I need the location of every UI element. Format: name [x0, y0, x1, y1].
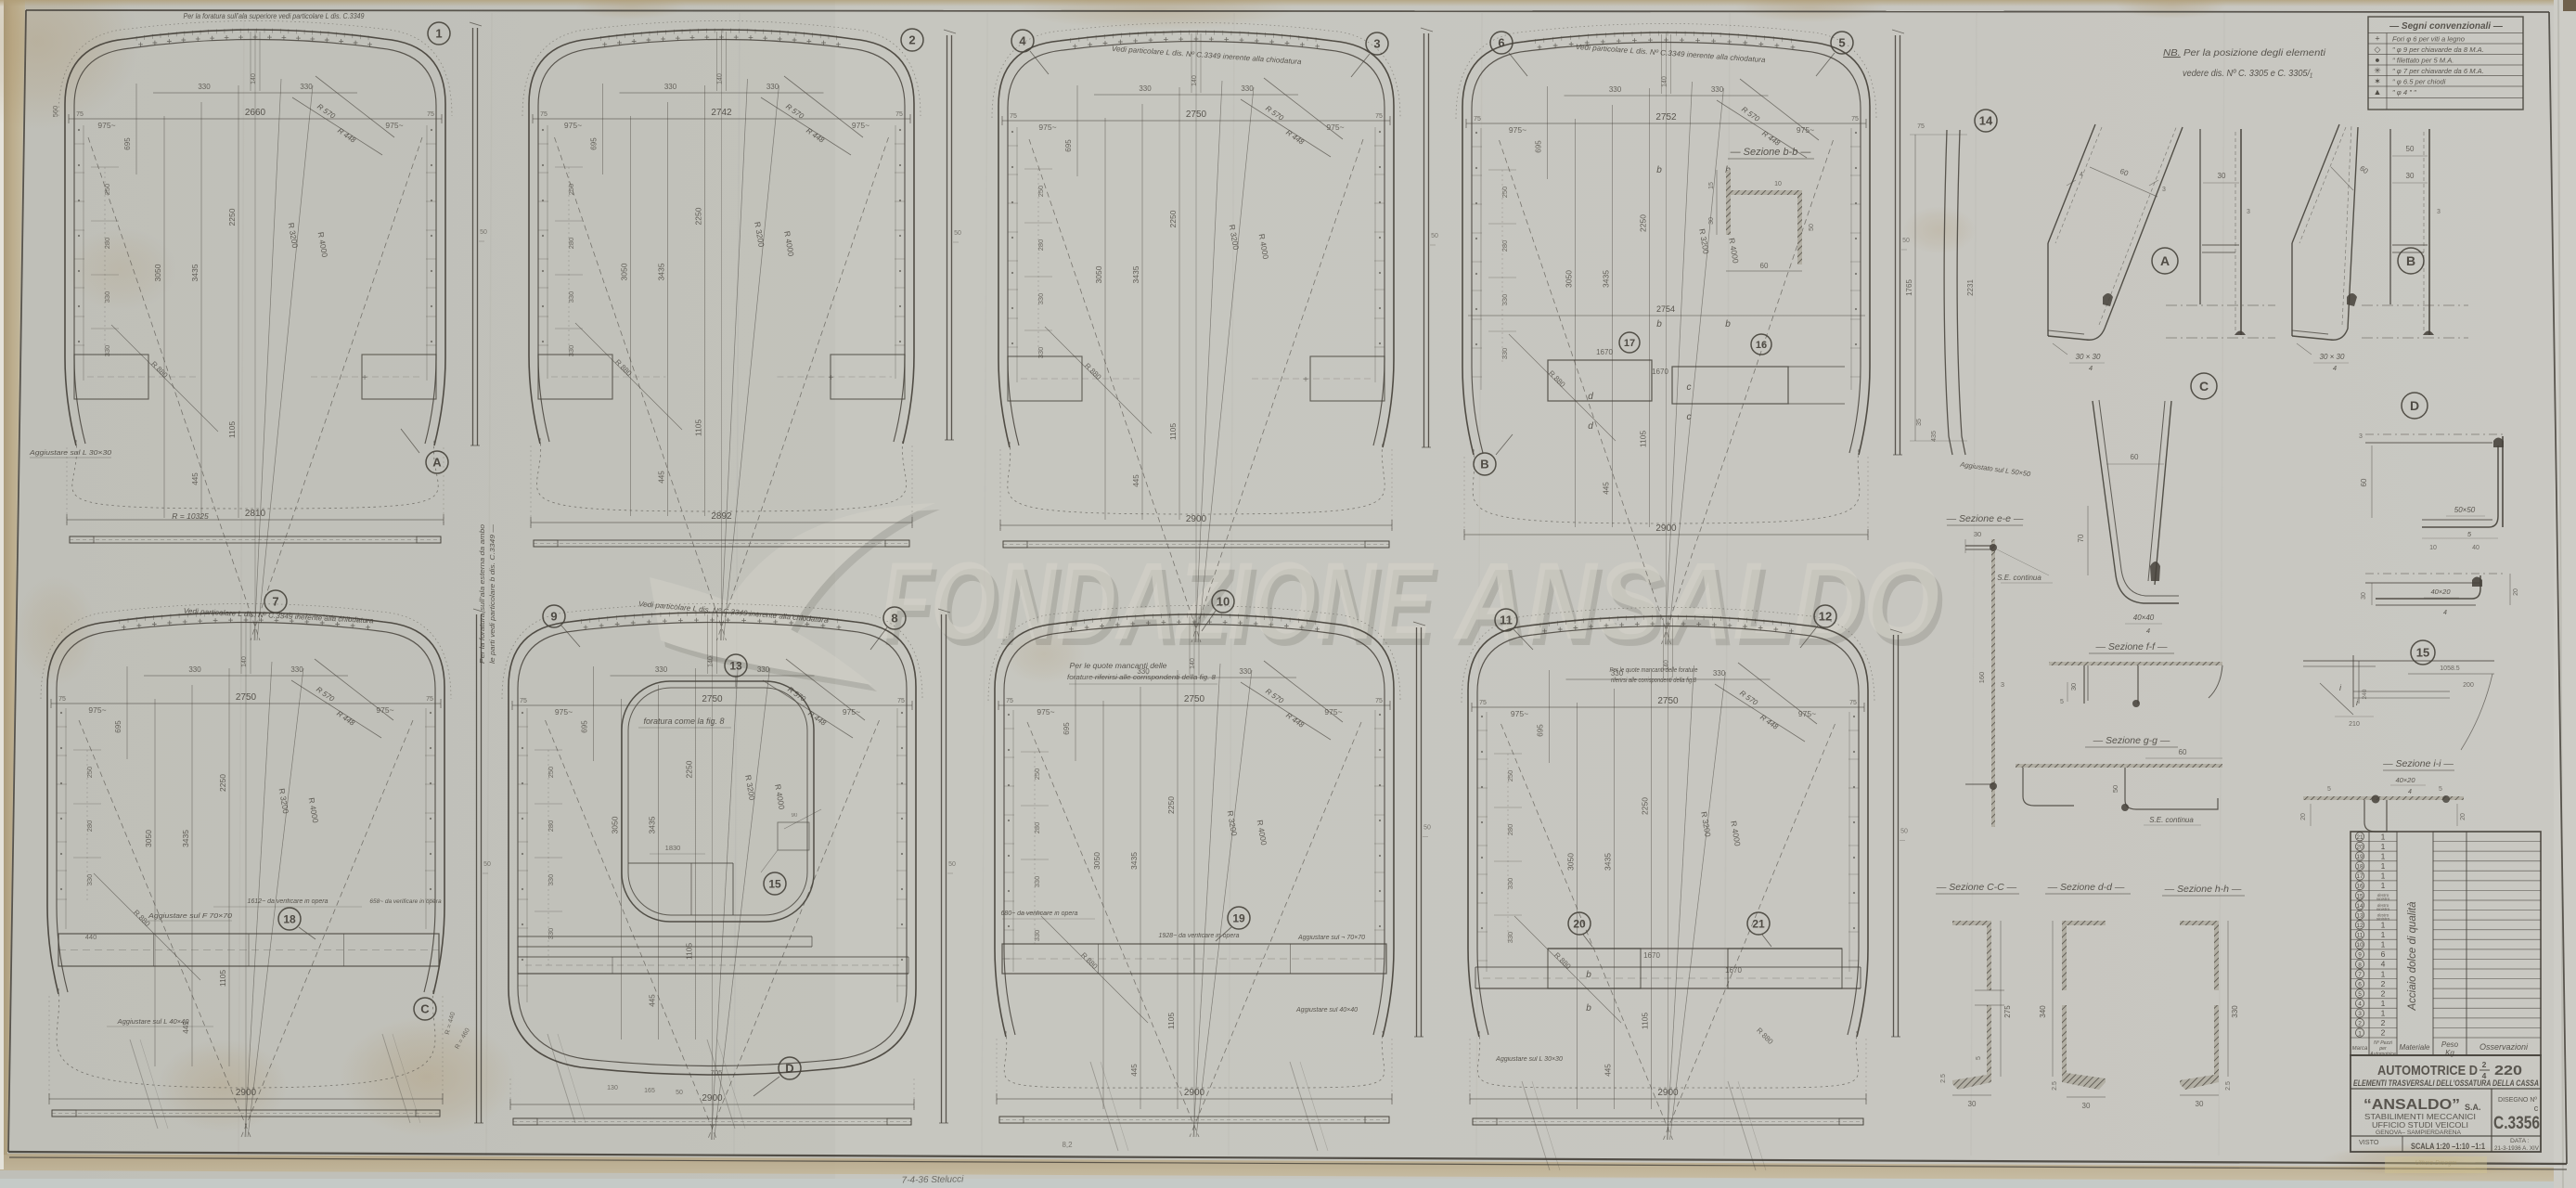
svg-text:Acciaio dolce di qualità: Acciaio dolce di qualità [2407, 901, 2418, 1012]
svg-text:— Sezione b-b —: — Sezione b-b — [1730, 147, 1812, 158]
svg-text:695: 695 [1063, 722, 1071, 735]
svg-text:3435: 3435 [1129, 852, 1139, 870]
svg-text:20: 20 [2460, 813, 2467, 820]
svg-text:210: 210 [2349, 721, 2360, 728]
svg-text:50: 50 [948, 861, 956, 868]
svg-text:+: + [829, 373, 834, 383]
svg-text:60: 60 [1760, 262, 1769, 270]
svg-text:2754: 2754 [1656, 304, 1675, 314]
svg-text:330: 330 [1501, 348, 1509, 360]
svg-text:3050: 3050 [620, 263, 629, 280]
svg-text:20: 20 [1573, 917, 1586, 930]
svg-text:13: 13 [729, 659, 742, 672]
svg-text:Aggiustare sul F 70×70: Aggiustare sul F 70×70 [148, 911, 233, 920]
svg-text:3: 3 [2437, 209, 2441, 215]
svg-text:50: 50 [1809, 224, 1815, 231]
svg-text:330: 330 [290, 665, 303, 674]
svg-text:50: 50 [954, 230, 961, 237]
svg-text:30: 30 [1974, 530, 1981, 538]
svg-text:3435: 3435 [190, 264, 200, 281]
svg-text:″ filettato per 5 M.A.: ″ filettato per 5 M.A. [2392, 57, 2454, 65]
svg-text:1105: 1105 [1166, 1013, 1176, 1030]
svg-text:695: 695 [1537, 724, 1545, 737]
svg-text:2: 2 [2381, 988, 2386, 998]
svg-text:140: 140 [1191, 75, 1198, 86]
svg-text:330: 330 [103, 291, 111, 303]
svg-text:2900: 2900 [1657, 1088, 1679, 1098]
svg-text:A: A [432, 456, 442, 470]
svg-text:75: 75 [1479, 700, 1487, 706]
svg-text:2.5: 2.5 [2052, 1081, 2058, 1091]
svg-text:Automotrice: Automotrice [2369, 1052, 2396, 1057]
svg-text:Per le quote mancanti delle: Per le quote mancanti delle [1070, 662, 1168, 670]
svg-text:250: 250 [103, 184, 111, 196]
svg-text:20: 20 [2356, 844, 2363, 850]
svg-text:B: B [1480, 458, 1488, 471]
svg-text:3050: 3050 [153, 264, 162, 281]
svg-text:975~: 975~ [843, 707, 860, 717]
svg-text:50: 50 [1900, 829, 1908, 835]
svg-text:“ANSALDO”: “ANSALDO” [2363, 1097, 2460, 1113]
svg-text:3050: 3050 [1566, 853, 1576, 871]
svg-text:1830: 1830 [665, 844, 681, 852]
svg-text:1670: 1670 [1596, 348, 1613, 356]
svg-text:1: 1 [435, 27, 442, 41]
svg-text:50: 50 [1423, 825, 1431, 832]
svg-text:1: 1 [2381, 999, 2386, 1008]
svg-text:695: 695 [114, 720, 122, 733]
svg-text:UFFICIO STUDI VEICOLI: UFFICIO STUDI VEICOLI [2372, 1120, 2468, 1130]
svg-text:2900: 2900 [1186, 514, 1207, 524]
svg-text:975~: 975~ [97, 121, 115, 130]
svg-text:15: 15 [1708, 182, 1715, 189]
svg-text:250: 250 [567, 184, 575, 196]
svg-text:445: 445 [191, 472, 200, 485]
svg-text:2231: 2231 [1966, 279, 1975, 296]
svg-text:b: b [1586, 1003, 1591, 1014]
svg-text:4: 4 [2333, 364, 2337, 372]
svg-text:21-3-1936 A. XIV: 21-3-1936 A. XIV [2494, 1145, 2540, 1152]
svg-text:975~: 975~ [1797, 125, 1814, 135]
svg-text:330: 330 [1139, 84, 1152, 93]
svg-text:330: 330 [757, 665, 770, 674]
svg-text:1: 1 [2381, 842, 2386, 851]
svg-text:330: 330 [1033, 930, 1041, 942]
svg-text:10: 10 [1774, 181, 1782, 187]
svg-text:c: c [2534, 1104, 2539, 1113]
svg-text:75: 75 [426, 696, 433, 703]
svg-text:2: 2 [2381, 979, 2386, 988]
svg-text:2892: 2892 [711, 511, 732, 522]
svg-text:2250: 2250 [1168, 210, 1178, 227]
svg-text:40: 40 [2472, 545, 2479, 551]
svg-text:+: + [362, 373, 367, 383]
svg-text:280: 280 [567, 238, 575, 250]
svg-text:2250: 2250 [1166, 796, 1176, 814]
svg-text:c: c [1687, 382, 1692, 393]
svg-text:b: b [1725, 319, 1731, 329]
svg-text:75: 75 [58, 696, 66, 703]
svg-text:10: 10 [2356, 942, 2363, 949]
svg-text:Per le quote mancanti delle f: Per le quote mancanti delle forature [1610, 665, 1698, 674]
svg-text:330: 330 [1506, 878, 1514, 890]
svg-text:975~: 975~ [1511, 709, 1528, 718]
svg-text:2900: 2900 [236, 1088, 257, 1098]
svg-text:20: 20 [2513, 588, 2519, 596]
svg-text:7: 7 [272, 595, 278, 609]
svg-text:1: 1 [2381, 872, 2386, 881]
svg-text:d: d [1588, 421, 1593, 432]
svg-text:140: 140 [251, 73, 257, 84]
svg-text:140: 140 [1190, 658, 1196, 669]
svg-text:— Sezione i-i —: — Sezione i-i — [2382, 758, 2454, 769]
svg-text:15: 15 [2416, 646, 2429, 660]
svg-text:21: 21 [2356, 834, 2363, 841]
svg-text:445: 445 [1130, 1064, 1139, 1077]
svg-text:b: b [1586, 970, 1591, 980]
svg-text:17: 17 [1624, 338, 1635, 349]
svg-text:1: 1 [2381, 940, 2386, 949]
svg-text:280: 280 [547, 820, 555, 833]
svg-text:1: 1 [2381, 881, 2386, 890]
svg-text:695: 695 [590, 137, 599, 150]
svg-text:280: 280 [1033, 822, 1041, 834]
svg-text:Ufficio Disegni: Ufficio Disegni [2415, 1160, 2457, 1167]
svg-text:130: 130 [607, 1085, 618, 1091]
svg-text:30: 30 [2196, 1100, 2204, 1108]
svg-text:— Sezione h-h —: — Sezione h-h — [2164, 884, 2242, 895]
svg-text:40×20: 40×20 [2430, 588, 2451, 596]
svg-text:b: b [1656, 319, 1662, 329]
svg-text:75: 75 [1375, 698, 1383, 704]
svg-text:975~: 975~ [385, 121, 403, 130]
svg-text:60: 60 [2360, 478, 2368, 486]
svg-text:3050: 3050 [1565, 270, 1574, 288]
svg-text:1: 1 [2381, 969, 2386, 978]
svg-text:30: 30 [2406, 172, 2415, 180]
svg-text:1670: 1670 [1725, 966, 1742, 975]
svg-text:S.E. continua: S.E. continua [2149, 816, 2194, 824]
svg-text:50: 50 [483, 861, 491, 868]
svg-text:7-4-36 Stelucci: 7-4-36 Stelucci [902, 1174, 965, 1185]
svg-text:330: 330 [85, 874, 94, 886]
svg-text:250: 250 [85, 767, 94, 779]
svg-text:sinistro: sinistro [2376, 907, 2390, 911]
svg-text:3: 3 [2358, 1011, 2362, 1017]
svg-text:1: 1 [2381, 851, 2386, 860]
svg-text:3: 3 [2359, 433, 2363, 440]
svg-text:440: 440 [85, 933, 97, 941]
svg-text:21: 21 [1752, 917, 1765, 930]
svg-text:3435: 3435 [1131, 265, 1140, 283]
svg-text:975~: 975~ [88, 705, 106, 715]
svg-text:30: 30 [2218, 172, 2226, 180]
svg-text:Fori φ 6 per viti a legno: Fori φ 6 per viti a legno [2392, 35, 2465, 44]
svg-text:975~: 975~ [1324, 707, 1342, 717]
svg-text:◇: ◇ [2375, 45, 2381, 54]
svg-text:16: 16 [2356, 884, 2363, 890]
svg-text:Marca: Marca [2352, 1046, 2368, 1052]
svg-text:3050: 3050 [1094, 265, 1103, 283]
svg-text:330: 330 [1609, 85, 1622, 94]
svg-text:— Segni convenzionali —: — Segni convenzionali — [2389, 21, 2504, 32]
svg-text:50: 50 [1431, 233, 1438, 239]
svg-text:foratura come la fig. 8: foratura come la fig. 8 [643, 717, 724, 726]
svg-text:NB. Per la posizione degli ele: NB. Per la posizione degli elementi [2163, 47, 2326, 58]
svg-text:240: 240 [2362, 689, 2368, 699]
svg-text:75: 75 [76, 111, 84, 118]
svg-text:330: 330 [766, 83, 779, 91]
svg-text:75: 75 [427, 111, 434, 118]
svg-text:4: 4 [1019, 34, 1026, 48]
svg-text:40×20: 40×20 [2395, 776, 2415, 784]
svg-text:330: 330 [300, 83, 313, 91]
svg-text:50: 50 [2406, 145, 2415, 153]
svg-text:280: 280 [1037, 239, 1045, 252]
svg-text:11: 11 [1500, 613, 1513, 627]
svg-text:250: 250 [1501, 187, 1509, 199]
svg-text:✳: ✳ [2374, 66, 2381, 75]
svg-text:445: 445 [1604, 1064, 1613, 1077]
svg-text:Materiale: Materiale [2400, 1043, 2430, 1052]
svg-text:2: 2 [908, 33, 915, 47]
svg-text:18: 18 [2356, 864, 2363, 871]
svg-text:le parti vedi particolare b di: le parti vedi particolare b dis. C.3349 … [488, 523, 496, 664]
svg-text:60: 60 [2131, 453, 2139, 461]
svg-text:+: + [2375, 34, 2379, 44]
svg-text:3435: 3435 [657, 263, 666, 280]
svg-text:975~: 975~ [1038, 123, 1056, 132]
svg-text:9: 9 [2358, 952, 2362, 959]
svg-text:3435: 3435 [1602, 270, 1611, 288]
svg-text:4: 4 [2358, 1001, 2362, 1008]
svg-text:40×40: 40×40 [2133, 613, 2155, 622]
svg-text:75: 75 [1849, 700, 1857, 706]
svg-text:14: 14 [2356, 903, 2363, 910]
svg-text:19: 19 [1232, 911, 1245, 924]
svg-text:4: 4 [2146, 626, 2150, 635]
svg-text:SCALA 1:20 –1:10 –1:1: SCALA 1:20 –1:10 –1:1 [2411, 1142, 2485, 1151]
svg-text:15: 15 [768, 877, 781, 890]
svg-text:S.A.: S.A. [2465, 1103, 2481, 1112]
svg-text:75: 75 [1851, 116, 1859, 123]
svg-text:35: 35 [1916, 419, 1923, 426]
svg-text:975~: 975~ [564, 121, 582, 130]
svg-text:″ φ 4 ″ ″: ″ φ 4 ″ ″ [2392, 88, 2416, 97]
svg-text:6: 6 [1498, 36, 1504, 50]
svg-text:5: 5 [2439, 786, 2442, 793]
svg-text:165: 165 [644, 1088, 655, 1094]
svg-text:250: 250 [1506, 770, 1514, 782]
svg-text:DATA :: DATA : [2510, 1138, 2530, 1144]
svg-text:50: 50 [480, 229, 487, 236]
svg-text:1: 1 [2381, 930, 2386, 939]
svg-text:975~: 975~ [376, 705, 393, 715]
svg-text:5: 5 [1838, 36, 1845, 50]
svg-text:20: 20 [2300, 813, 2307, 820]
svg-text:12: 12 [2356, 923, 2363, 929]
svg-text:d: d [1588, 392, 1593, 402]
svg-text:3: 3 [1373, 37, 1380, 51]
svg-text:70: 70 [2077, 534, 2085, 542]
svg-text:330: 330 [1037, 293, 1045, 305]
svg-text:— Sezione e-e —: — Sezione e-e — [1946, 513, 2024, 524]
svg-text:60: 60 [2179, 748, 2187, 756]
svg-text:140: 140 [717, 73, 724, 84]
svg-text:19: 19 [2356, 854, 2363, 860]
svg-text:1: 1 [2381, 1009, 2386, 1018]
svg-text:280: 280 [103, 238, 111, 250]
svg-text:30: 30 [2069, 683, 2078, 691]
svg-text:75: 75 [540, 111, 547, 118]
svg-text:2: 2 [2381, 1018, 2386, 1027]
svg-text:250: 250 [1033, 768, 1041, 781]
svg-text:2250: 2250 [694, 207, 703, 225]
svg-text:sinistro: sinistro [2376, 897, 2390, 901]
svg-text:30 × 30: 30 × 30 [2076, 353, 2101, 361]
svg-text:1: 1 [2358, 1030, 2362, 1037]
svg-text:275: 275 [2003, 1005, 2012, 1018]
svg-text:330: 330 [1711, 85, 1724, 94]
svg-text:B: B [2406, 253, 2415, 268]
svg-text:5: 5 [2327, 786, 2331, 793]
svg-text:680~ da verificare in opera: 680~ da verificare in opera [1000, 910, 1077, 917]
svg-text:1105: 1105 [227, 421, 237, 439]
svg-text:10: 10 [1217, 595, 1230, 609]
svg-text:75: 75 [895, 111, 903, 118]
svg-text:1: 1 [2381, 861, 2386, 871]
svg-text:Aggiustare sul 40×40: Aggiustare sul 40×40 [1295, 1007, 1358, 1014]
svg-text:″ φ 7 per chiavarde da 6 M.A.: ″ φ 7 per chiavarde da 6 M.A. [2392, 67, 2484, 75]
svg-text:1612~ da verificare in opera: 1612~ da verificare in opera [248, 898, 328, 905]
svg-text:695: 695 [123, 137, 132, 150]
svg-text:— Sezione f-f —: — Sezione f-f — [2094, 641, 2168, 652]
svg-text:1105: 1105 [1168, 423, 1178, 441]
svg-text:Per la foratura sull’ala super: Per la foratura sull’ala superiore vedi … [184, 12, 365, 20]
svg-text:″ φ 9 per chiavarde da 8 M.A.: ″ φ 9 per chiavarde da 8 M.A. [2392, 45, 2484, 54]
svg-text:✶: ✶ [2374, 77, 2381, 86]
svg-text:75: 75 [1375, 113, 1383, 120]
svg-text:Osservazioni: Osservazioni [2479, 1042, 2529, 1052]
svg-text:1105: 1105 [1639, 431, 1648, 448]
svg-text:220: 220 [2494, 1063, 2522, 1078]
svg-text:2250: 2250 [1641, 797, 1650, 815]
svg-text:A: A [2160, 253, 2170, 268]
svg-text:5: 5 [2060, 699, 2064, 705]
svg-text:+: + [1303, 375, 1308, 385]
svg-text:975~: 975~ [852, 121, 869, 130]
svg-text:C: C [420, 1002, 430, 1016]
svg-text:15: 15 [2356, 893, 2363, 899]
svg-text:75: 75 [1474, 116, 1481, 123]
svg-text:75: 75 [1006, 698, 1013, 704]
svg-text:forature riferirsi alle corris: forature riferirsi alle corrispondenti d… [1067, 673, 1217, 681]
svg-text:2250: 2250 [685, 760, 694, 778]
svg-text:435: 435 [1931, 431, 1938, 442]
svg-text:330: 330 [2231, 1005, 2239, 1018]
svg-text:3: 3 [2001, 680, 2004, 689]
svg-text:1670: 1670 [1652, 368, 1668, 376]
svg-text:280: 280 [1506, 824, 1514, 836]
svg-text:445: 445 [1603, 482, 1611, 495]
svg-text:50: 50 [2111, 785, 2119, 793]
svg-text:330: 330 [547, 928, 555, 940]
svg-text:12: 12 [1819, 610, 1832, 624]
svg-text:13: 13 [2356, 912, 2363, 919]
svg-text:280: 280 [85, 820, 94, 833]
svg-text:Aggiustare sul L 30×30: Aggiustare sul L 30×30 [1495, 1056, 1563, 1063]
svg-text:3050: 3050 [611, 816, 620, 833]
svg-text:50×50: 50×50 [2454, 506, 2476, 514]
svg-text:c: c [1687, 412, 1692, 422]
svg-text:280: 280 [1501, 240, 1509, 252]
svg-text:8: 8 [891, 612, 897, 626]
svg-text:— Sezione C-C —: — Sezione C-C — [1936, 882, 2017, 893]
svg-text:GENOVA– SAMPIERDARENA: GENOVA– SAMPIERDARENA [2376, 1130, 2462, 1136]
svg-text:975~: 975~ [1798, 709, 1816, 718]
svg-text:3050: 3050 [144, 830, 153, 847]
svg-text:8,2: 8,2 [1062, 1141, 1073, 1149]
svg-text:D: D [785, 1062, 793, 1076]
svg-text:30: 30 [2361, 592, 2367, 600]
svg-text:330: 330 [1239, 667, 1252, 676]
svg-text:330: 330 [1506, 932, 1514, 944]
svg-text:R = 10325: R = 10325 [172, 511, 209, 521]
svg-text:1105: 1105 [694, 420, 703, 437]
svg-text:″ φ 6.5 per chiodi: ″ φ 6.5 per chiodi [2392, 78, 2446, 86]
svg-text:2810: 2810 [245, 509, 266, 519]
svg-text:14: 14 [1979, 114, 1993, 128]
svg-text:2250: 2250 [218, 774, 227, 792]
svg-text:Peso: Peso [2441, 1040, 2459, 1049]
svg-text:2250: 2250 [227, 208, 237, 226]
svg-text:riferirsi alle corrispondent: riferirsi alle corrispondenti della fig.… [1611, 676, 1697, 684]
svg-text:140: 140 [708, 656, 715, 667]
svg-text:3435: 3435 [181, 830, 190, 847]
svg-text:D: D [2410, 398, 2419, 413]
svg-text:3050: 3050 [1092, 852, 1101, 870]
svg-text:2.5: 2.5 [2225, 1081, 2232, 1091]
svg-text:250: 250 [547, 767, 555, 779]
svg-text:3: 3 [2162, 187, 2166, 193]
svg-text:Aggiustare sul L 30×30: Aggiustare sul L 30×30 [29, 448, 112, 457]
svg-text:330: 330 [664, 83, 677, 91]
svg-text:975~: 975~ [1326, 123, 1344, 132]
svg-text:ANSALDO: ANSALDO [1452, 540, 1939, 663]
svg-text:4: 4 [2080, 172, 2083, 178]
svg-text:5: 5 [1976, 1056, 1982, 1060]
svg-text:1670: 1670 [1643, 951, 1660, 960]
svg-text:1058.5: 1058.5 [2440, 665, 2460, 672]
svg-text:75: 75 [1917, 123, 1925, 130]
svg-text:6: 6 [2358, 981, 2362, 988]
svg-text:VISTO: VISTO [2359, 1138, 2379, 1146]
svg-text:Aggiustare sul L 40×40: Aggiustare sul L 40×40 [117, 1017, 190, 1026]
svg-text:2.5: 2.5 [1940, 1074, 1947, 1083]
svg-text:17: 17 [2356, 873, 2363, 880]
svg-text:C.3356: C.3356 [2493, 1114, 2540, 1133]
svg-text:445: 445 [658, 471, 666, 484]
svg-text:330: 330 [1241, 84, 1254, 93]
svg-text:4: 4 [2381, 960, 2386, 969]
svg-text:2900: 2900 [702, 1093, 723, 1104]
svg-text:ELEMENTI TRASVERSALI DELL’OS: ELEMENTI TRASVERSALI DELL’OSSATURA DELLA… [2353, 1078, 2539, 1088]
svg-text:140: 140 [1662, 76, 1668, 87]
svg-text:11: 11 [2357, 933, 2363, 939]
svg-text:2: 2 [2381, 1028, 2386, 1038]
svg-text:8: 8 [2358, 962, 2362, 968]
svg-text:695: 695 [1064, 139, 1073, 152]
